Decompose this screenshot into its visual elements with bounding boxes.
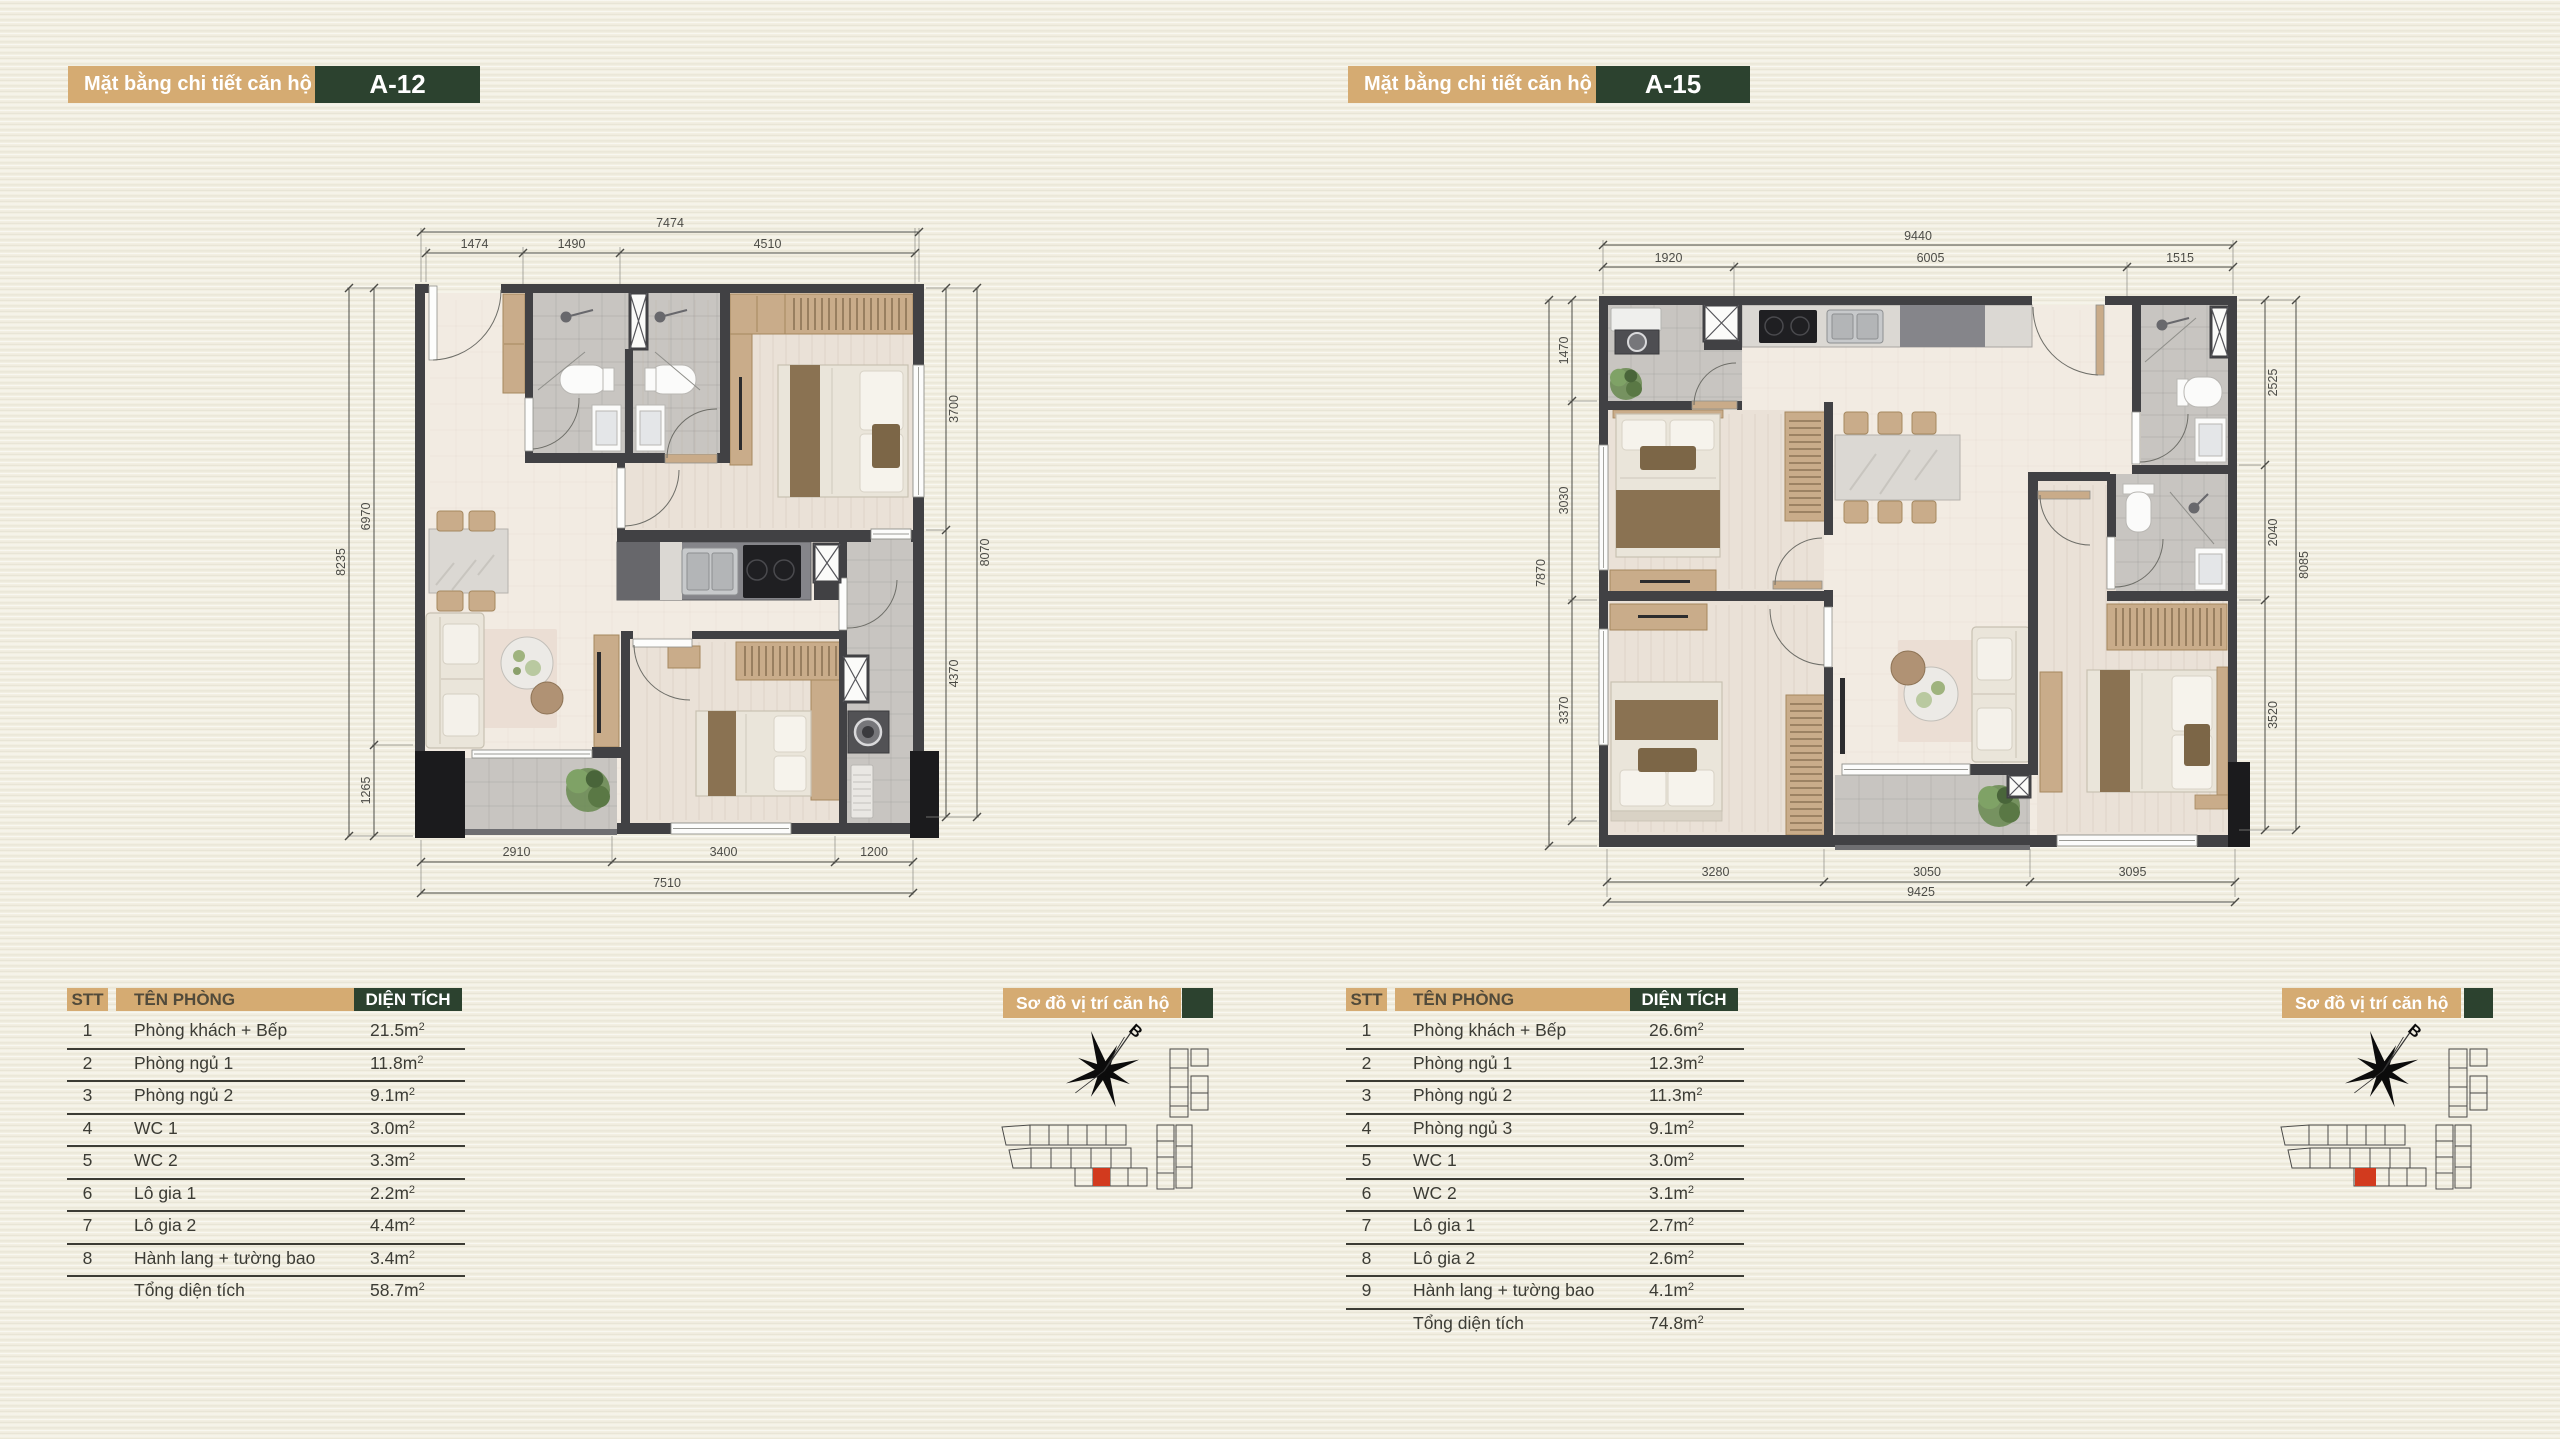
- svg-text:B: B: [2404, 1021, 2424, 1041]
- svg-text:B: B: [1125, 1021, 1145, 1041]
- svg-text:8235: 8235: [334, 548, 348, 576]
- svg-text:3370: 3370: [1557, 697, 1571, 725]
- svg-text:3095: 3095: [2119, 865, 2147, 879]
- svg-text:1265: 1265: [359, 777, 373, 805]
- svg-text:2040: 2040: [2266, 519, 2280, 547]
- svg-text:1474: 1474: [461, 237, 489, 251]
- svg-text:4510: 4510: [754, 237, 782, 251]
- svg-text:3700: 3700: [947, 395, 961, 423]
- svg-text:9425: 9425: [1907, 885, 1935, 899]
- svg-text:1200: 1200: [860, 845, 888, 859]
- svg-text:3280: 3280: [1702, 865, 1730, 879]
- svg-text:2910: 2910: [503, 845, 531, 859]
- svg-text:3400: 3400: [710, 845, 738, 859]
- svg-text:3520: 3520: [2266, 701, 2280, 729]
- svg-text:4370: 4370: [947, 660, 961, 688]
- svg-text:1920: 1920: [1655, 251, 1683, 265]
- svg-text:6005: 6005: [1917, 251, 1945, 265]
- svg-text:2525: 2525: [2266, 369, 2280, 397]
- svg-text:1515: 1515: [2166, 251, 2194, 265]
- svg-text:7870: 7870: [1534, 559, 1548, 587]
- svg-text:8070: 8070: [978, 539, 992, 567]
- svg-text:1490: 1490: [558, 237, 586, 251]
- svg-text:3030: 3030: [1557, 487, 1571, 515]
- svg-text:3050: 3050: [1913, 865, 1941, 879]
- svg-text:9440: 9440: [1904, 229, 1932, 243]
- svg-text:7510: 7510: [653, 876, 681, 890]
- svg-text:6970: 6970: [359, 503, 373, 531]
- svg-text:8085: 8085: [2297, 551, 2311, 579]
- svg-text:7474: 7474: [656, 216, 684, 230]
- svg-text:1470: 1470: [1557, 337, 1571, 365]
